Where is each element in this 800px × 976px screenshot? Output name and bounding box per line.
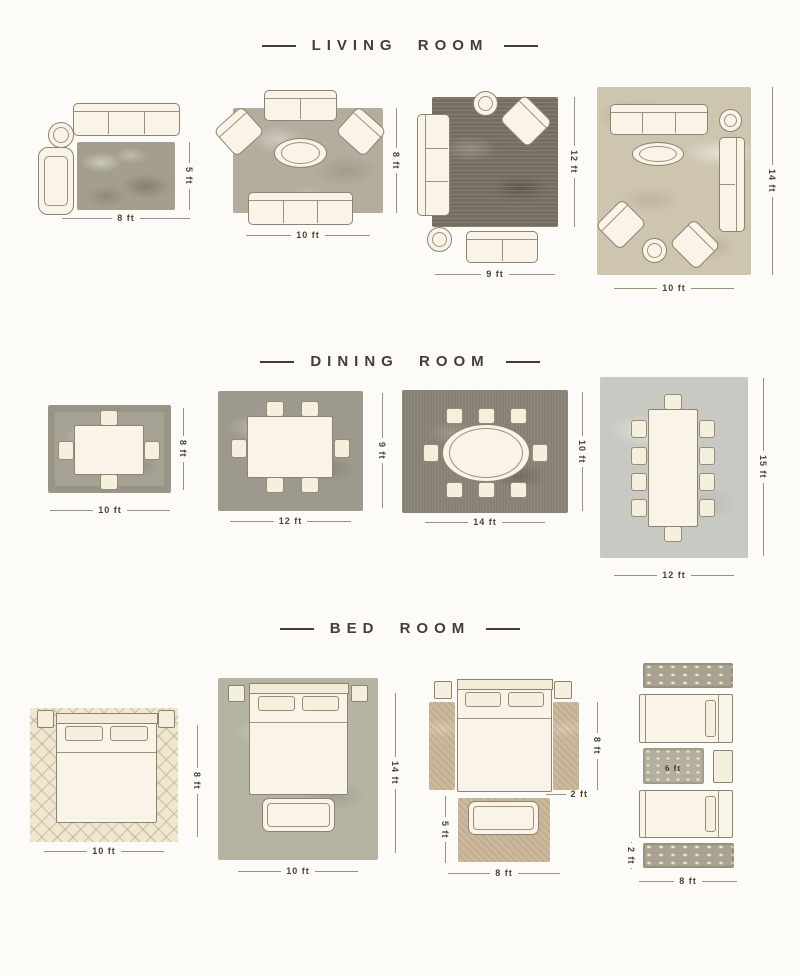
living-room-layout-4: 10 ft 14 ft: [593, 80, 789, 298]
nightstand: [37, 710, 54, 728]
bed-room-section-title: BED ROOM: [0, 620, 800, 637]
runner-rug: [429, 702, 455, 790]
rug-height-label: 9 ft: [377, 442, 387, 460]
rug-height-dimension: 14 ft: [765, 87, 779, 275]
sofa: [417, 114, 450, 216]
rug-width-dimension: 10 ft: [44, 846, 164, 856]
dining-chair: [664, 394, 682, 410]
loveseat: [719, 137, 745, 232]
dining-room-layout-4: 12 ft 15 ft: [595, 372, 781, 586]
bed-room-title: BED ROOM: [330, 620, 471, 637]
dining-chair: [478, 408, 495, 424]
dining-chair: [301, 477, 319, 493]
living-room-layout-2: 10 ft 8 ft: [218, 82, 410, 257]
dining-chair: [266, 401, 284, 417]
rug-width-dimension: 8 ft: [62, 213, 190, 223]
runner-length-dimension: 8 ft: [639, 876, 737, 886]
living-room-title: LIVING ROOM: [312, 37, 489, 54]
pillow: [705, 796, 716, 832]
dining-chair: [664, 526, 682, 542]
bed: [639, 694, 733, 743]
dining-chair: [231, 439, 247, 458]
foot-rug-height-dimension: 5 ft: [438, 796, 452, 863]
runner-width-dimension: 2 ft: [624, 842, 638, 869]
center-rug-width-label: 6 ft: [665, 764, 681, 773]
pillow: [508, 692, 543, 707]
rug-width-dimension: 9 ft: [435, 269, 555, 279]
sofa: [248, 192, 353, 225]
bed: [56, 713, 157, 823]
dining-chair: [699, 499, 715, 517]
rug-height-label: 8 ft: [178, 440, 188, 458]
rug-width-dimension: 10 ft: [246, 230, 370, 240]
dining-chair: [699, 447, 715, 465]
rug-size-guide: LIVING ROOM 8 ft 5 ft 10 ft 8 ft 9 ft 12…: [0, 0, 800, 976]
rug-height-label: 15 ft: [758, 455, 768, 479]
rug-height-label: 5 ft: [184, 167, 194, 185]
dining-chair: [532, 444, 548, 462]
dining-chair: [446, 482, 463, 498]
foot-rug-width-dimension: 8 ft: [448, 868, 560, 878]
dining-table: [74, 425, 144, 475]
nightstand: [713, 750, 733, 783]
pillow: [465, 692, 500, 707]
sofa: [73, 103, 180, 136]
dining-room-layout-1: 10 ft 8 ft: [40, 398, 205, 525]
bed: [249, 683, 348, 795]
dining-chair: [510, 408, 527, 424]
runner-width-dimension: 2 ft: [546, 789, 588, 799]
loveseat: [466, 231, 538, 263]
living-room-section-title: LIVING ROOM: [0, 37, 800, 54]
loveseat: [264, 90, 337, 121]
dining-table: [442, 424, 530, 482]
pillow: [258, 696, 295, 711]
rug-width-dimension: 12 ft: [614, 570, 734, 580]
rug-width-dimension: 10 ft: [614, 283, 734, 293]
living-room-layout-3: 9 ft 12 ft: [413, 88, 598, 285]
runner-height-label: 8 ft: [592, 737, 602, 755]
dining-chair: [631, 499, 647, 517]
runner-rug: [643, 843, 734, 868]
dining-chair: [446, 408, 463, 424]
dining-chair: [510, 482, 527, 498]
foot-rug-height-label: 5 ft: [440, 821, 450, 839]
rug-height-label: 10 ft: [577, 440, 587, 464]
rug-height-label: 14 ft: [767, 169, 777, 193]
bed-room-layout-4: 6 ft 2 ft 8 ft: [618, 650, 784, 898]
runner-rug: [643, 663, 733, 688]
dining-table: [648, 409, 698, 527]
rug-width-dimension: 10 ft: [50, 505, 170, 515]
dining-chair: [58, 441, 74, 460]
rug-height-label: 12 ft: [569, 150, 579, 174]
dining-chair: [423, 444, 439, 462]
bench: [262, 798, 335, 832]
nightstand: [554, 681, 572, 699]
rug-height-dimension: 9 ft: [375, 393, 389, 508]
dining-room-layout-3: 14 ft 10 ft: [398, 388, 590, 527]
rug-height-dimension: 8 ft: [389, 108, 403, 213]
rug-height-dimension: 15 ft: [756, 378, 770, 556]
rug-height-dimension: 8 ft: [190, 725, 204, 837]
bed: [639, 790, 733, 838]
dining-chair: [100, 410, 118, 426]
coffee-table: [632, 142, 684, 166]
pillow: [110, 726, 148, 741]
dining-room-layout-2: 12 ft 9 ft: [210, 388, 395, 536]
runner-rug: [553, 702, 579, 790]
rug-height-label: 8 ft: [192, 772, 202, 790]
runner-width-label: 2 ft: [626, 847, 636, 865]
rug-height-dimension: 10 ft: [575, 392, 589, 511]
rug: [77, 142, 175, 210]
dining-chair: [631, 420, 647, 438]
rug-height-dimension: 5 ft: [182, 142, 196, 210]
side-table: [642, 238, 667, 263]
pillow: [705, 700, 716, 737]
nightstand: [158, 710, 175, 728]
rug-width-dimension: 14 ft: [425, 517, 545, 527]
pillow: [302, 696, 339, 711]
rug-height-dimension: 14 ft: [388, 693, 402, 853]
bed: [457, 679, 552, 792]
living-room-layout-1: 8 ft 5 ft: [20, 85, 220, 240]
sofa: [610, 104, 708, 135]
dining-chair: [266, 477, 284, 493]
bed-room-layout-2: 10 ft 14 ft: [210, 665, 406, 881]
dining-chair: [631, 473, 647, 491]
dining-room-section-title: DINING ROOM: [0, 353, 800, 370]
rug-height-label: 14 ft: [390, 761, 400, 785]
rug-height-dimension: 8 ft: [176, 408, 190, 490]
rug-height-dimension: 12 ft: [567, 97, 581, 227]
armchair: [38, 147, 74, 215]
dining-room-title: DINING ROOM: [310, 353, 489, 370]
nightstand: [228, 685, 245, 702]
rug-height-label: 8 ft: [391, 152, 401, 170]
side-table: [473, 91, 498, 116]
pillow: [65, 726, 103, 741]
dining-chair: [478, 482, 495, 498]
dining-chair: [100, 474, 118, 490]
bed-room-layout-3: 8 ft 2 ft 5 ft 8 ft: [420, 665, 620, 889]
dining-chair: [699, 473, 715, 491]
side-table: [48, 122, 74, 148]
side-table: [427, 227, 452, 252]
side-table: [719, 109, 742, 132]
rug-width-dimension: 12 ft: [230, 516, 351, 526]
dining-chair: [631, 447, 647, 465]
coffee-table: [274, 138, 327, 168]
nightstand: [434, 681, 452, 699]
bench: [468, 801, 539, 835]
dining-chair: [334, 439, 350, 458]
dining-chair: [699, 420, 715, 438]
dining-table: [247, 416, 333, 478]
runner-height-dimension: 8 ft: [590, 702, 604, 790]
dining-chair: [301, 401, 319, 417]
rug-width-dimension: 10 ft: [238, 866, 358, 876]
nightstand: [351, 685, 368, 702]
dining-chair: [144, 441, 160, 460]
bed-room-layout-1: 10 ft 8 ft: [20, 700, 212, 862]
